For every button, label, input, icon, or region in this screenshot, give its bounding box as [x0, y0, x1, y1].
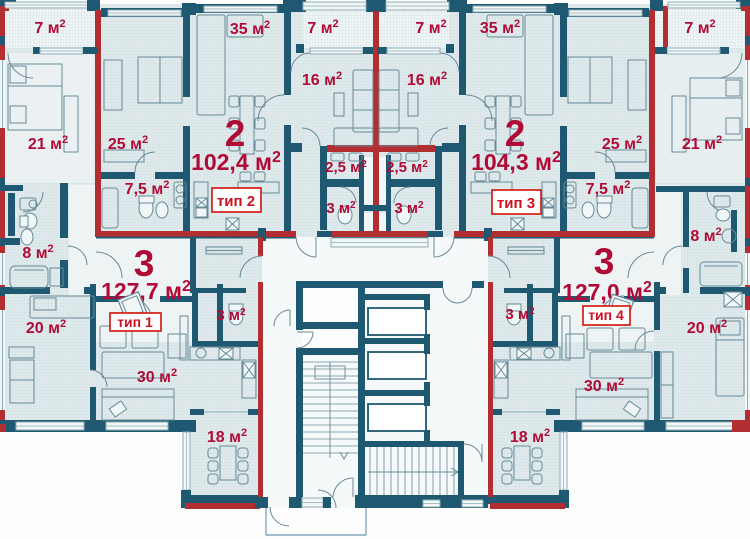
- svg-text:тип 2: тип 2: [217, 193, 255, 210]
- svg-text:127,0 м2: 127,0 м2: [562, 279, 652, 305]
- svg-text:2,5 м2: 2,5 м2: [325, 159, 367, 176]
- svg-text:102,4 м2: 102,4 м2: [191, 149, 281, 175]
- svg-text:3: 3: [594, 241, 615, 282]
- svg-text:127,7 м2: 127,7 м2: [101, 278, 191, 304]
- svg-text:2: 2: [505, 113, 526, 154]
- svg-text:104,3 м2: 104,3 м2: [471, 149, 561, 175]
- svg-text:7,5 м2: 7,5 м2: [586, 179, 631, 198]
- svg-text:7,5 м2: 7,5 м2: [125, 179, 170, 198]
- svg-text:2: 2: [225, 113, 246, 154]
- svg-text:2,5 м2: 2,5 м2: [386, 159, 428, 176]
- svg-text:тип 3: тип 3: [497, 195, 535, 212]
- svg-text:тип 4: тип 4: [588, 307, 624, 323]
- svg-text:тип 1: тип 1: [117, 314, 153, 330]
